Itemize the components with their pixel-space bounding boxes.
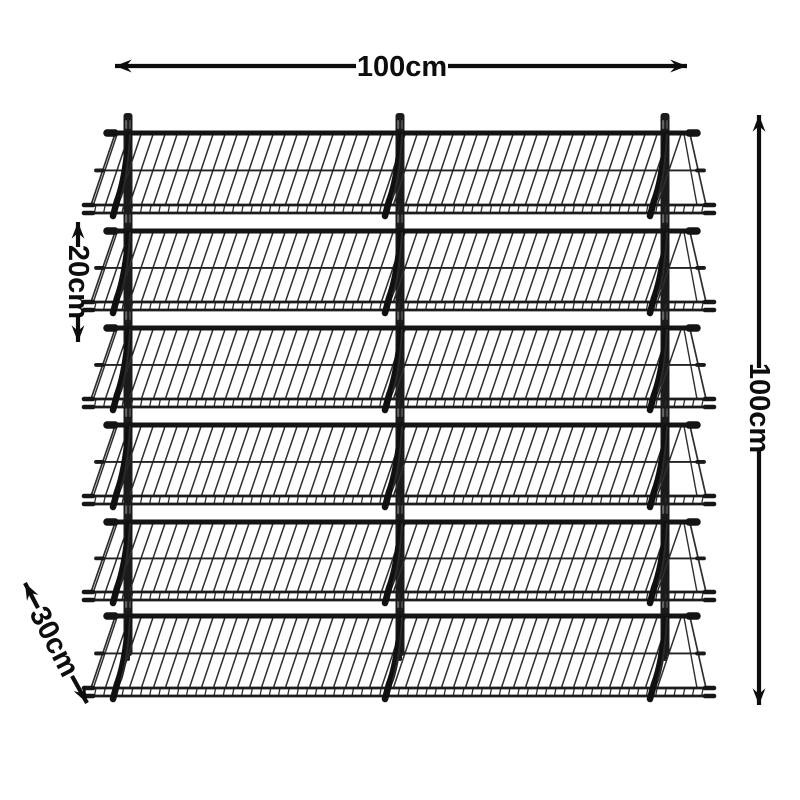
rail-slot	[401, 505, 403, 514]
rail-slot	[125, 214, 127, 223]
rail-slot	[666, 505, 668, 514]
shelf-front-lip	[84, 688, 714, 696]
rail-slot	[129, 120, 131, 129]
rail-slot	[397, 408, 399, 417]
rail-slot	[666, 214, 668, 223]
rail-slot	[125, 311, 127, 320]
rail-slot	[397, 505, 399, 514]
rail-slot	[397, 120, 399, 129]
shelf-front-lip	[84, 496, 714, 504]
rail-slot	[662, 408, 664, 417]
shelf-front-lip	[84, 592, 714, 600]
rail-slot	[401, 120, 403, 129]
rail-slot	[401, 311, 403, 320]
shelf-front-lip	[84, 205, 714, 213]
wall-rail	[124, 113, 133, 661]
rail-slot	[666, 120, 668, 129]
rail-slot	[662, 120, 664, 129]
width-dimension-label: 100cm	[357, 51, 447, 83]
product-dimension-diagram: 100cm 100cm 20cm 30cm	[0, 0, 800, 800]
rail-slot	[125, 120, 127, 129]
rail-slot	[129, 505, 131, 514]
rail-slot	[125, 408, 127, 417]
shelving-diagram-canvas: 100cm 100cm 20cm 30cm	[0, 0, 800, 800]
rail-slot	[662, 505, 664, 514]
shelf-spacing-dimension-label: 20cm	[62, 245, 94, 319]
rail-slot	[397, 311, 399, 320]
rail-slot	[666, 408, 668, 417]
wall-rail-bar	[124, 113, 133, 656]
rail-slot	[125, 505, 127, 514]
rail-slot	[401, 408, 403, 417]
rail-slot	[397, 214, 399, 223]
shelf-front-lip	[84, 302, 714, 310]
rail-slot	[666, 311, 668, 320]
height-dimension-label: 100cm	[743, 363, 775, 453]
rail-slot	[662, 214, 664, 223]
rail-slot	[129, 311, 131, 320]
rail-slot	[129, 214, 131, 223]
rail-slot	[129, 408, 131, 417]
rail-slot	[662, 311, 664, 320]
rail-slot	[401, 214, 403, 223]
shelf-front-lip	[84, 399, 714, 407]
